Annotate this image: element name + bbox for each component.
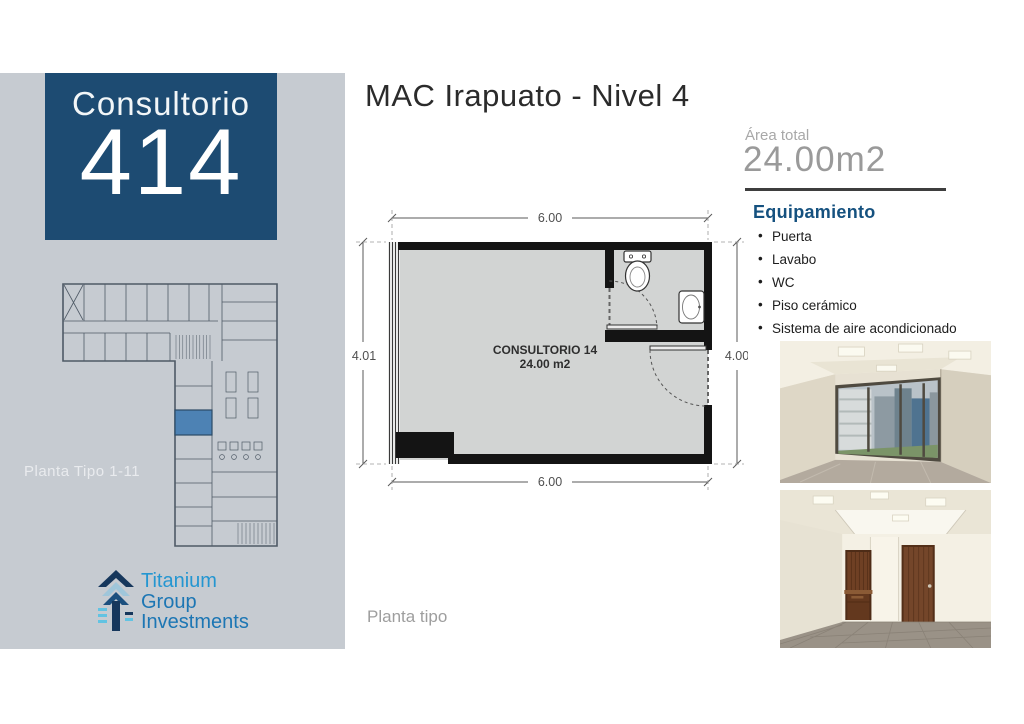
equipment-item: WC: [758, 275, 957, 290]
highlighted-unit-414: [175, 410, 212, 435]
company-logo-text: Titanium Group Investments: [141, 571, 249, 632]
mini-plan-furniture: [218, 372, 262, 459]
building-mini-plan: [58, 276, 314, 548]
wooden-door: [902, 545, 935, 623]
mini-plan-caption: Planta Tipo 1-11: [24, 463, 140, 480]
plan-caption: Planta tipo: [367, 607, 447, 627]
equipment-item: Lavabo: [758, 252, 957, 267]
unit-number: 414: [45, 123, 277, 200]
company-logo: Titanium Group Investments: [96, 570, 249, 634]
logo-line-2: Group: [141, 592, 249, 612]
window-wall: [388, 242, 400, 464]
bath-partition-vertical: [605, 246, 614, 288]
dim-bottom: 6.00: [538, 475, 562, 489]
logo-line-1: Titanium: [141, 571, 249, 591]
interior-photo-doors-view: [780, 490, 991, 648]
equipment-list: Puerta Lavabo WC Piso cerámico Sistema d…: [758, 229, 957, 344]
mini-plan-stairs: [176, 335, 274, 544]
divider-line: [745, 188, 946, 191]
page-title: MAC Irapuato - Nivel 4: [365, 78, 690, 114]
logo-line-3: Investments: [141, 612, 249, 632]
dim-left: 4.01: [352, 349, 376, 363]
floorplan-drawing: CONSULTORIO 14 24.00 m2 6.00 6.00 4.01 4…: [348, 202, 748, 497]
wall-bottom-left-block: [396, 432, 454, 458]
area-total-value: 24.00m2: [743, 140, 886, 180]
equipment-item: Sistema de aire acondicionado: [758, 321, 957, 336]
equipment-item: Puerta: [758, 229, 957, 244]
wall-top: [398, 242, 712, 250]
sink-icon: [679, 291, 704, 323]
titanium-building-arrow-icon: [96, 570, 136, 634]
room-area-label: 24.00 m2: [520, 357, 571, 371]
window: [835, 377, 941, 462]
toilet-icon: [624, 251, 651, 291]
wall-right-upper: [704, 242, 712, 350]
unit-card: Consultorio 414: [45, 73, 277, 240]
sidebar: Consultorio 414: [0, 73, 345, 649]
wall-bottom: [448, 454, 712, 464]
dim-top: 6.00: [538, 211, 562, 225]
mini-plan-outline: [63, 284, 277, 546]
interior-photo-window-view: [780, 341, 991, 483]
door-with-cabinet: [844, 550, 872, 620]
room-label: CONSULTORIO 14: [493, 343, 598, 357]
mini-plan-rooms: [63, 284, 277, 546]
equipment-item: Piso cerámico: [758, 298, 957, 313]
brochure-page: Consultorio 414: [0, 0, 1024, 724]
dim-right: 4.00: [725, 349, 748, 363]
equipment-heading: Equipamiento: [753, 202, 876, 223]
bath-partition-horizontal: [605, 330, 704, 342]
